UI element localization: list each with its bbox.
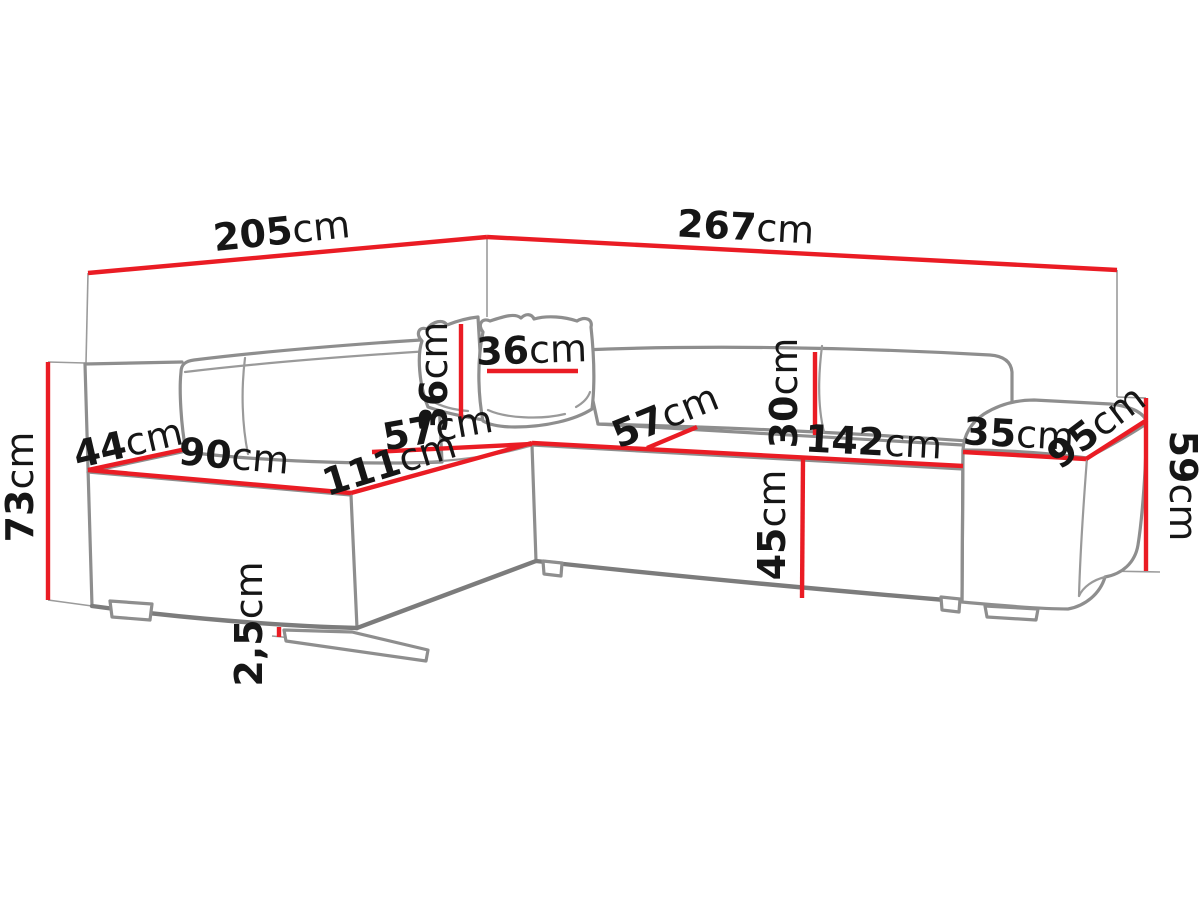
right-base-bottom-edge [536, 561, 957, 601]
dim-label-armrest-height: 59cm [1161, 431, 1200, 542]
tick-height-bottom [48, 600, 92, 606]
chaise-right-edge [532, 445, 536, 561]
dim-label-foot-height: 2,5cm [227, 561, 271, 686]
armrest-front-left-edge [962, 450, 963, 602]
chaise-front-edge [351, 495, 357, 628]
foot-right-base [941, 597, 960, 612]
foot-corner-small [543, 561, 562, 576]
dim-label-pillow-width: 36cm [475, 326, 587, 374]
extension-line-left-drop [86, 273, 88, 363]
foot-left [110, 601, 152, 620]
dim-line-seat-height [802, 459, 803, 598]
foot-armrest [985, 606, 1038, 620]
foot-chaise [284, 630, 428, 661]
dim-label-left-module-width: 90cm [177, 429, 291, 482]
dim-label-backrest-height: 30cm [762, 338, 806, 449]
dim-label-seat-front-width: 142cm [804, 416, 943, 467]
dim-label-seat-height: 45cm [750, 470, 794, 581]
sofa-back-left-edge [85, 364, 92, 606]
sofa-back-top-edge [85, 362, 182, 364]
dim-label-total-height: 73cm [0, 432, 42, 543]
sofa-dimension-diagram: 205cm 267cm 73cm 44cm 90cm 111cm 57cm 36… [0, 0, 1200, 900]
dim-label-total-width-right: 267cm [676, 201, 815, 252]
dim-label-pillow-height: 36cm [412, 322, 456, 433]
chaise-bottom-right-edge [357, 561, 536, 628]
tick-height-top [48, 362, 85, 363]
